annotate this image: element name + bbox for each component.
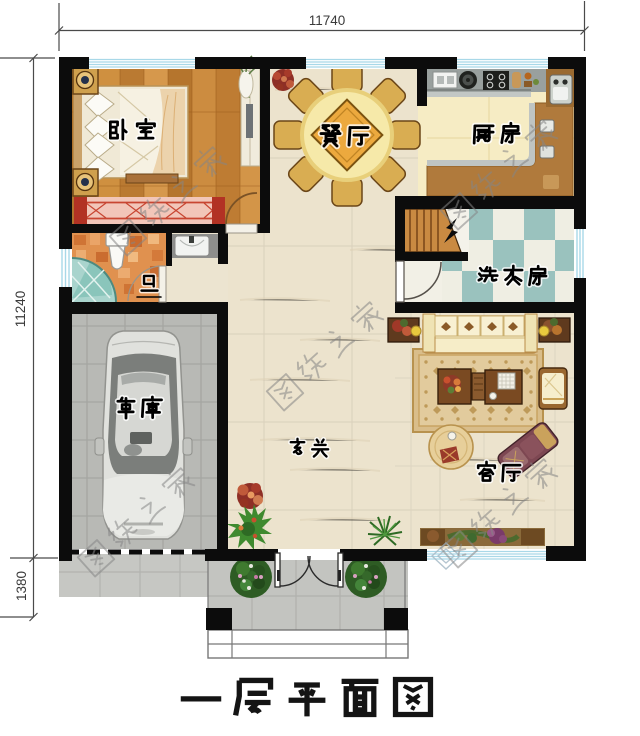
- svg-text:11740: 11740: [309, 13, 346, 28]
- svg-text:11240: 11240: [13, 291, 28, 328]
- svg-text:1380: 1380: [14, 571, 29, 601]
